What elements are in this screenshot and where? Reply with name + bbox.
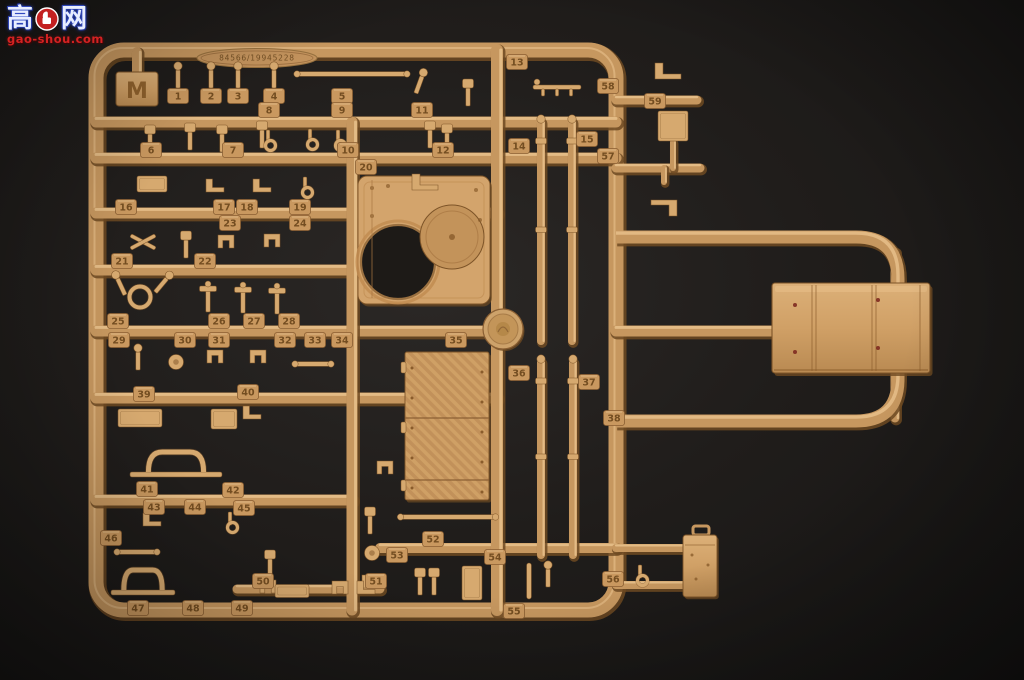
sprue-part-hook xyxy=(303,177,313,198)
sprue-part-bracket xyxy=(253,179,271,192)
sprue-part-arch xyxy=(130,452,222,477)
sprue-part-clamp xyxy=(207,350,223,363)
svg-text:37: 37 xyxy=(582,378,595,389)
svg-text:7: 7 xyxy=(230,146,237,157)
svg-text:57: 57 xyxy=(601,152,614,163)
large-stowage-box-part xyxy=(772,283,933,376)
svg-text:5: 5 xyxy=(339,92,346,103)
watermark-thumb-logo-icon xyxy=(35,7,59,31)
part-number-tab-19: 19 xyxy=(290,200,311,215)
svg-text:34: 34 xyxy=(335,336,349,347)
sprue-part-clamp xyxy=(264,234,280,247)
part-number-tab-26: 26 xyxy=(209,314,230,329)
part-number-tab-42: 42 xyxy=(223,483,244,498)
stowage-bin-part xyxy=(683,526,719,599)
sprue-part-disc xyxy=(365,546,380,561)
part-number-tab-16: 16 xyxy=(116,200,137,215)
round-emblem-part xyxy=(483,309,525,351)
part-number-tab-5: 5 xyxy=(332,89,353,104)
watermark-site-text: gao-shou.com xyxy=(7,34,104,46)
part-number-tab-12: 12 xyxy=(433,143,454,158)
sprue-part-pin xyxy=(174,62,182,88)
part-number-tab-28: 28 xyxy=(279,314,300,329)
part-number-tab-8: 8 xyxy=(259,103,280,118)
svg-text:23: 23 xyxy=(223,219,236,230)
sprue-part-bracket xyxy=(243,406,261,419)
sprue-part-clamp xyxy=(377,461,393,474)
part-number-tab-7: 7 xyxy=(223,143,244,158)
part-number-tab-17: 17 xyxy=(214,200,235,215)
sprue-photo-scene: 高 网 gao-shou.com M845 xyxy=(0,0,1024,680)
sprue-part-xcross xyxy=(130,234,157,251)
svg-text:20: 20 xyxy=(359,163,373,174)
svg-text:42: 42 xyxy=(226,486,239,497)
svg-text:18: 18 xyxy=(240,203,254,214)
part-number-tab-24: 24 xyxy=(290,216,311,231)
svg-text:10: 10 xyxy=(341,146,355,157)
svg-text:56: 56 xyxy=(606,575,620,586)
part-number-tab-29: 29 xyxy=(109,333,130,348)
sprue-part-blockl xyxy=(275,585,309,598)
svg-text:8: 8 xyxy=(266,106,273,117)
part-number-tab-23: 23 xyxy=(220,216,241,231)
sprue-part-pin xyxy=(134,344,142,370)
part-number-tab-32: 32 xyxy=(275,333,296,348)
model-kit-sprue: M84566/19945228 123456789101112131415161… xyxy=(0,0,1024,680)
svg-text:27: 27 xyxy=(247,317,260,328)
part-number-tab-1: 1 xyxy=(168,89,189,104)
svg-text:16: 16 xyxy=(119,203,133,214)
part-number-tab-49: 49 xyxy=(232,601,253,616)
part-number-tab-18: 18 xyxy=(237,200,258,215)
svg-text:44: 44 xyxy=(188,503,202,514)
sprue-part-paddle xyxy=(265,550,276,577)
sprue-part-ring xyxy=(130,287,151,308)
svg-text:29: 29 xyxy=(112,336,125,347)
part-number-tab-3: 3 xyxy=(228,89,249,104)
part-number-tab-45: 45 xyxy=(234,501,255,516)
svg-text:15: 15 xyxy=(580,135,593,146)
svg-text:21: 21 xyxy=(115,257,128,268)
sprue-part-clamp xyxy=(250,350,266,363)
part-number-tab-37: 37 xyxy=(579,375,600,390)
svg-text:58: 58 xyxy=(601,82,615,93)
svg-text:51: 51 xyxy=(369,577,382,588)
sprue-part-blockl xyxy=(118,409,162,427)
part-number-tab-35: 35 xyxy=(446,333,467,348)
part-number-tab-40: 40 xyxy=(238,385,259,400)
sprue-part-paddle xyxy=(185,123,196,150)
watermark: 高 网 gao-shou.com xyxy=(7,6,104,46)
sprue-part-paddle xyxy=(181,231,192,258)
sprue-part-paddle xyxy=(429,568,440,595)
svg-text:17: 17 xyxy=(217,203,230,214)
svg-text:47: 47 xyxy=(131,604,144,615)
svg-text:54: 54 xyxy=(488,553,502,564)
sprue-part-clamp xyxy=(218,235,234,248)
part-number-tab-53: 53 xyxy=(387,548,408,563)
part-number-tab-21: 21 xyxy=(112,254,133,269)
part-number-tab-58: 58 xyxy=(598,79,619,94)
part-number-tab-38: 38 xyxy=(604,411,625,426)
svg-text:4: 4 xyxy=(271,92,278,103)
part-number-tab-6: 6 xyxy=(141,143,162,158)
sprue-part-disc xyxy=(169,355,184,370)
sprue-part-paddle xyxy=(463,79,474,106)
part-number-tab-2: 2 xyxy=(201,89,222,104)
svg-text:38: 38 xyxy=(607,414,621,425)
svg-text:49: 49 xyxy=(235,604,248,615)
part-number-tab-4: 4 xyxy=(264,89,285,104)
svg-text:40: 40 xyxy=(241,388,255,399)
sprue-part-rodh xyxy=(397,514,498,520)
sprue-part-lbracket xyxy=(655,63,681,79)
part-number-tab-56: 56 xyxy=(603,572,624,587)
sprue-part-lbracket xyxy=(651,200,677,216)
anti-slip-deck-part xyxy=(401,352,491,503)
sprue-part-tpin xyxy=(200,281,217,312)
part-number-tab-46: 46 xyxy=(101,531,122,546)
svg-text:31: 31 xyxy=(212,336,225,347)
part-number-tab-14: 14 xyxy=(509,139,530,154)
part-number-tab-55: 55 xyxy=(504,604,525,619)
part-number-tab-43: 43 xyxy=(144,500,165,515)
part-number-tab-51: 51 xyxy=(366,574,387,589)
watermark-char-left: 高 xyxy=(7,6,33,32)
part-number-tab-44: 44 xyxy=(185,500,206,515)
sprue-part-rodh xyxy=(292,361,334,367)
svg-text:22: 22 xyxy=(198,257,211,268)
sprue-part-paddle xyxy=(365,507,376,534)
part-number-tab-11: 11 xyxy=(412,103,433,118)
svg-text:2: 2 xyxy=(208,92,215,103)
sprue-part-tpin xyxy=(235,282,252,313)
svg-text:13: 13 xyxy=(510,58,523,69)
sprue-part-rodv xyxy=(527,563,532,599)
svg-text:28: 28 xyxy=(282,317,296,328)
svg-text:11: 11 xyxy=(415,106,428,117)
turret-face-part xyxy=(357,176,492,307)
svg-text:36: 36 xyxy=(512,369,526,380)
part-number-tab-59: 59 xyxy=(645,94,666,109)
sprue-part-hook xyxy=(308,129,318,150)
sprue-part-blockl xyxy=(137,176,167,192)
sprue-letter-tab: M xyxy=(116,72,158,106)
part-number-tab-48: 48 xyxy=(183,601,204,616)
part-number-tab-54: 54 xyxy=(485,550,506,565)
part-number-tab-25: 25 xyxy=(108,314,129,329)
sprue-part-blockl xyxy=(211,409,237,429)
part-number-tab-34: 34 xyxy=(332,333,353,348)
part-number-tab-15: 15 xyxy=(577,132,598,147)
sprue-kit-number: 84566/19945228 xyxy=(219,54,295,63)
part-number-tab-10: 10 xyxy=(338,143,359,158)
sprue-part-pin xyxy=(544,561,552,587)
sprue-part-pin xyxy=(207,62,215,88)
svg-text:25: 25 xyxy=(111,317,124,328)
sprue-part-rodh xyxy=(294,71,410,77)
sprue-part-hook xyxy=(266,130,276,151)
sprue-part-blockl xyxy=(462,566,482,600)
part-number-tab-27: 27 xyxy=(244,314,265,329)
svg-text:50: 50 xyxy=(256,577,270,588)
part-number-tab-13: 13 xyxy=(507,55,528,70)
sprue-part-pin xyxy=(412,67,429,94)
svg-text:35: 35 xyxy=(449,336,462,347)
part-number-tab-47: 47 xyxy=(128,601,149,616)
part-number-tab-31: 31 xyxy=(209,333,230,348)
part-number-tab-41: 41 xyxy=(137,482,158,497)
part-number-tab-50: 50 xyxy=(253,574,274,589)
sprue-part-pin xyxy=(270,62,278,88)
part-number-tab-30: 30 xyxy=(175,333,196,348)
watermark-char-right: 网 xyxy=(61,6,87,32)
svg-text:19: 19 xyxy=(293,203,306,214)
svg-text:45: 45 xyxy=(237,504,250,515)
svg-text:9: 9 xyxy=(339,106,346,117)
part-number-tab-33: 33 xyxy=(305,333,326,348)
svg-text:32: 32 xyxy=(278,336,291,347)
sprue-part-rodh xyxy=(114,549,160,555)
svg-text:14: 14 xyxy=(512,142,526,153)
sprue-part-blockl xyxy=(658,111,688,141)
svg-text:55: 55 xyxy=(507,607,520,618)
part-number-tab-36: 36 xyxy=(509,366,530,381)
sprue-letter: M xyxy=(126,79,148,104)
part-number-tab-57: 57 xyxy=(598,149,619,164)
sprue-part-tbar xyxy=(533,79,581,96)
sprue-part-paddle xyxy=(415,568,426,595)
svg-text:59: 59 xyxy=(648,97,661,108)
svg-text:41: 41 xyxy=(140,485,153,496)
svg-text:1: 1 xyxy=(175,92,182,103)
svg-text:6: 6 xyxy=(148,146,155,157)
sprue-large-parts: M84566/19945228 xyxy=(116,49,933,600)
sprue-part-tpin xyxy=(269,283,286,314)
svg-text:30: 30 xyxy=(178,336,192,347)
svg-text:26: 26 xyxy=(212,317,226,328)
svg-text:3: 3 xyxy=(235,92,242,103)
part-number-tab-9: 9 xyxy=(332,103,353,118)
svg-text:39: 39 xyxy=(137,390,150,401)
svg-text:52: 52 xyxy=(426,535,439,546)
svg-text:33: 33 xyxy=(308,336,321,347)
svg-text:43: 43 xyxy=(147,503,160,514)
part-number-tab-22: 22 xyxy=(195,254,216,269)
svg-text:48: 48 xyxy=(186,604,200,615)
sprue-part-arch xyxy=(111,570,175,595)
svg-text:53: 53 xyxy=(390,551,403,562)
part-number-tab-52: 52 xyxy=(423,532,444,547)
sprue-part-bracket xyxy=(143,513,161,526)
svg-text:12: 12 xyxy=(436,146,449,157)
svg-text:46: 46 xyxy=(104,534,118,545)
svg-text:24: 24 xyxy=(293,219,307,230)
part-number-tab-20: 20 xyxy=(356,160,377,175)
sprue-part-bracket xyxy=(206,179,224,192)
part-number-tab-39: 39 xyxy=(134,387,155,402)
sprue-part-pin xyxy=(234,62,242,88)
